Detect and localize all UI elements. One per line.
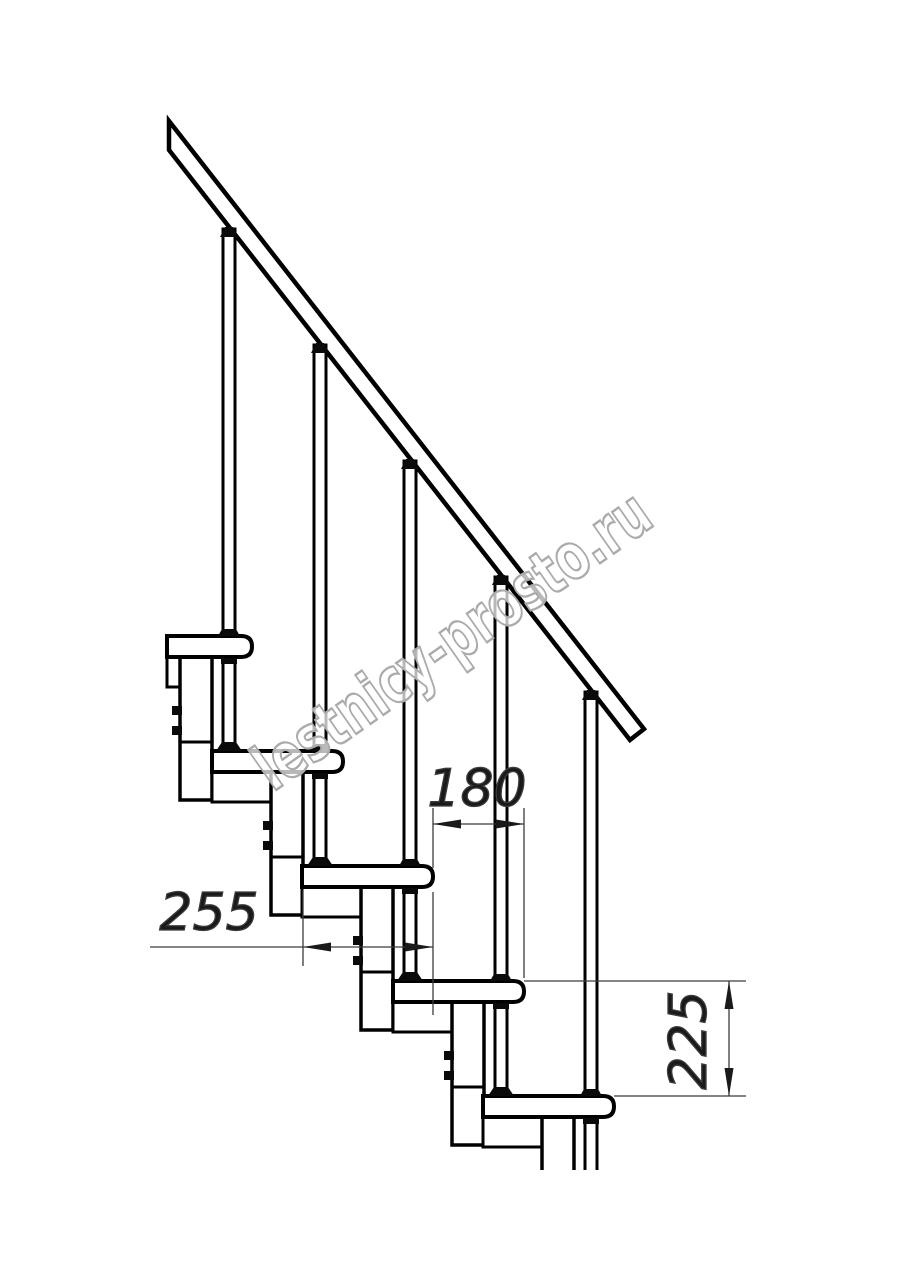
arrow-down [725, 1068, 734, 1096]
module-2-bolt [263, 821, 273, 830]
stair-drawing: 180 255 225 lestnicy-prosto.ru [0, 0, 914, 1280]
dim-label-run: 180 [427, 759, 526, 819]
arrow-left [433, 820, 461, 829]
module-2-bolt [263, 841, 273, 850]
arrow-left [303, 943, 331, 952]
base-4 [488, 1087, 514, 1096]
module-1-bolt [172, 706, 182, 715]
tread-5 [483, 1096, 614, 1117]
collar-1 [218, 629, 240, 636]
dim-label-depth: 255 [159, 883, 258, 943]
module-4-bolt [444, 1051, 454, 1060]
arrow-up [725, 981, 734, 1009]
watermark-text: lestnicy-prosto.ru [240, 476, 666, 805]
base-3 [397, 972, 423, 981]
baluster-1 [220, 227, 238, 749]
tread-4 [393, 981, 524, 1002]
bracket-5 [483, 1117, 542, 1147]
base-2 [307, 857, 333, 866]
dim-label-rise: 225 [659, 990, 719, 1089]
collar-4 [490, 974, 512, 981]
bracket-1 [167, 657, 180, 687]
nut [493, 1003, 509, 1009]
arrow-right [405, 943, 433, 952]
module-3-bolt [353, 936, 363, 945]
bracket-4 [393, 1002, 452, 1032]
watermark: lestnicy-prosto.ru [240, 476, 666, 805]
step-5 [483, 1096, 614, 1170]
tread-3 [302, 866, 433, 887]
base-1 [216, 742, 242, 751]
module-1-bolt [172, 726, 182, 735]
module-3-bolt [353, 956, 363, 965]
module-4 [452, 1002, 484, 1145]
module-3 [361, 887, 393, 1030]
dimension-annotations: 180 255 225 [150, 759, 746, 1096]
stair-drawing-page: 180 255 225 lestnicy-prosto.ru [0, 0, 914, 1280]
nut [402, 888, 418, 894]
baluster-2 [311, 343, 329, 864]
collar-5 [580, 1089, 602, 1096]
module-4-bolt [444, 1071, 454, 1080]
module-5 [542, 1117, 574, 1170]
nut [221, 658, 237, 664]
dimension-run-180: 180 [427, 759, 526, 978]
collar-3 [399, 859, 421, 866]
tread-1 [167, 636, 252, 657]
nut [583, 1118, 599, 1124]
bracket-3 [302, 887, 361, 917]
module-1 [180, 657, 212, 800]
arrow-right [496, 820, 524, 829]
dimension-rise-225: 225 [524, 981, 746, 1096]
